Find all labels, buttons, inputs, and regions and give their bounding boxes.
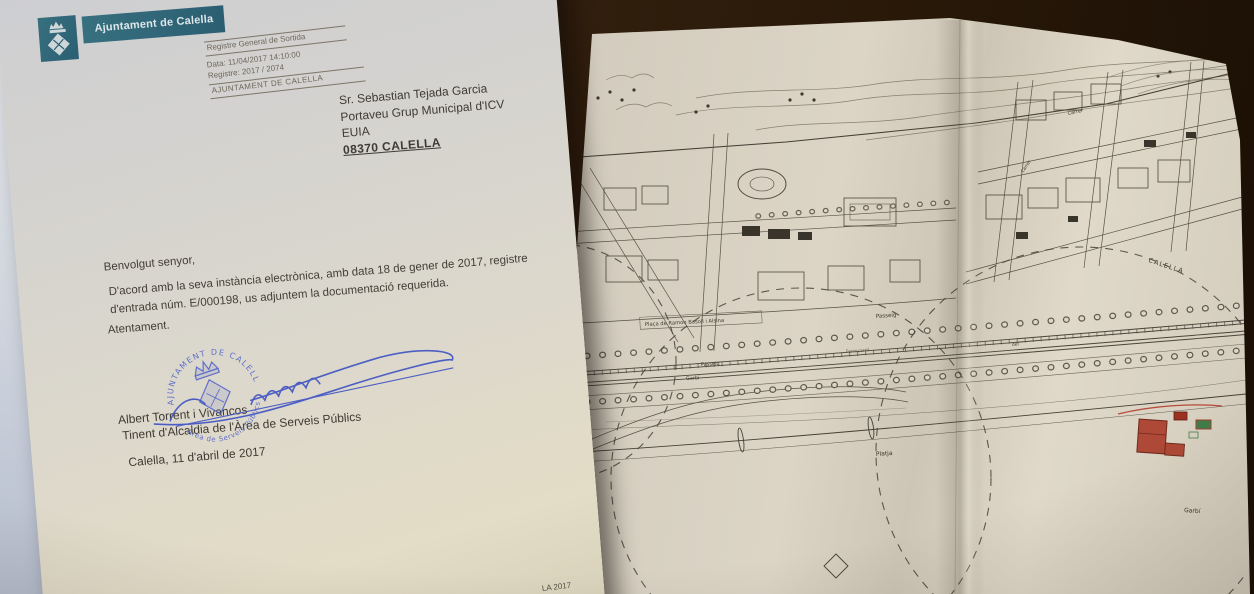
small-red-block <box>1174 412 1187 420</box>
svg-text:Àrea de Serveis Públics: Àrea de Serveis Públics <box>183 398 271 453</box>
org-banner: Ajuntament de Calella <box>82 5 226 43</box>
map-label-garbi-a: Garbí <box>686 374 701 382</box>
building-outlines <box>604 84 1190 300</box>
urban-plan-drawing: Plaça de Ramon Basoli i Alsina Ferrocarr… <box>546 20 1246 594</box>
footer-partial-text: LA 2017 <box>541 581 571 593</box>
salutation-text: Benvolgut senyor, <box>103 254 195 273</box>
red-marker-line <box>1118 405 1222 414</box>
terrain-contours <box>606 56 1236 140</box>
page-fold-shading <box>936 20 984 594</box>
coat-of-arms-icon <box>38 15 79 62</box>
map-page: Plaça de Ramon Basoli i Alsina Ferrocarr… <box>518 0 1254 594</box>
map-label-placa: Plaça de Ramon Basoli i Alsina <box>645 318 724 328</box>
small-green-block <box>1196 420 1211 429</box>
stamp-crest-icon <box>188 357 236 419</box>
map-label-carrer-b: Carrer <box>1020 159 1033 174</box>
street-lines <box>566 61 1246 460</box>
promenade-tree-rows <box>556 305 1246 404</box>
highlighted-building <box>1137 419 1186 456</box>
plan-border-line <box>566 72 1236 158</box>
letter-page: Ajuntament de Calella Registre General d… <box>0 0 606 594</box>
stamp-arc-bottom-text: Àrea de Serveis Públics <box>183 398 271 453</box>
athletics-track <box>738 169 786 199</box>
map-label-platja: Platja <box>876 450 893 458</box>
map-label-passeig-a: Passeig <box>876 313 897 320</box>
highlighted-site <box>1118 405 1222 456</box>
registry-stamp: Registre General de Sortida Data: 11/04/… <box>204 23 370 99</box>
map-label-passeig-b: Passeig <box>701 361 720 368</box>
small-green-outline <box>1189 432 1198 438</box>
map-label-garbi-b: Garbí <box>1184 507 1201 515</box>
crown-icon <box>49 21 64 29</box>
map-label-del: del <box>1012 341 1019 348</box>
photo-of-documents: Plaça de Ramon Basoli i Alsina Ferrocarr… <box>0 0 1254 594</box>
addressee-block: Sr. Sebastian Tejada Garcia Portaveu Gru… <box>338 76 543 158</box>
